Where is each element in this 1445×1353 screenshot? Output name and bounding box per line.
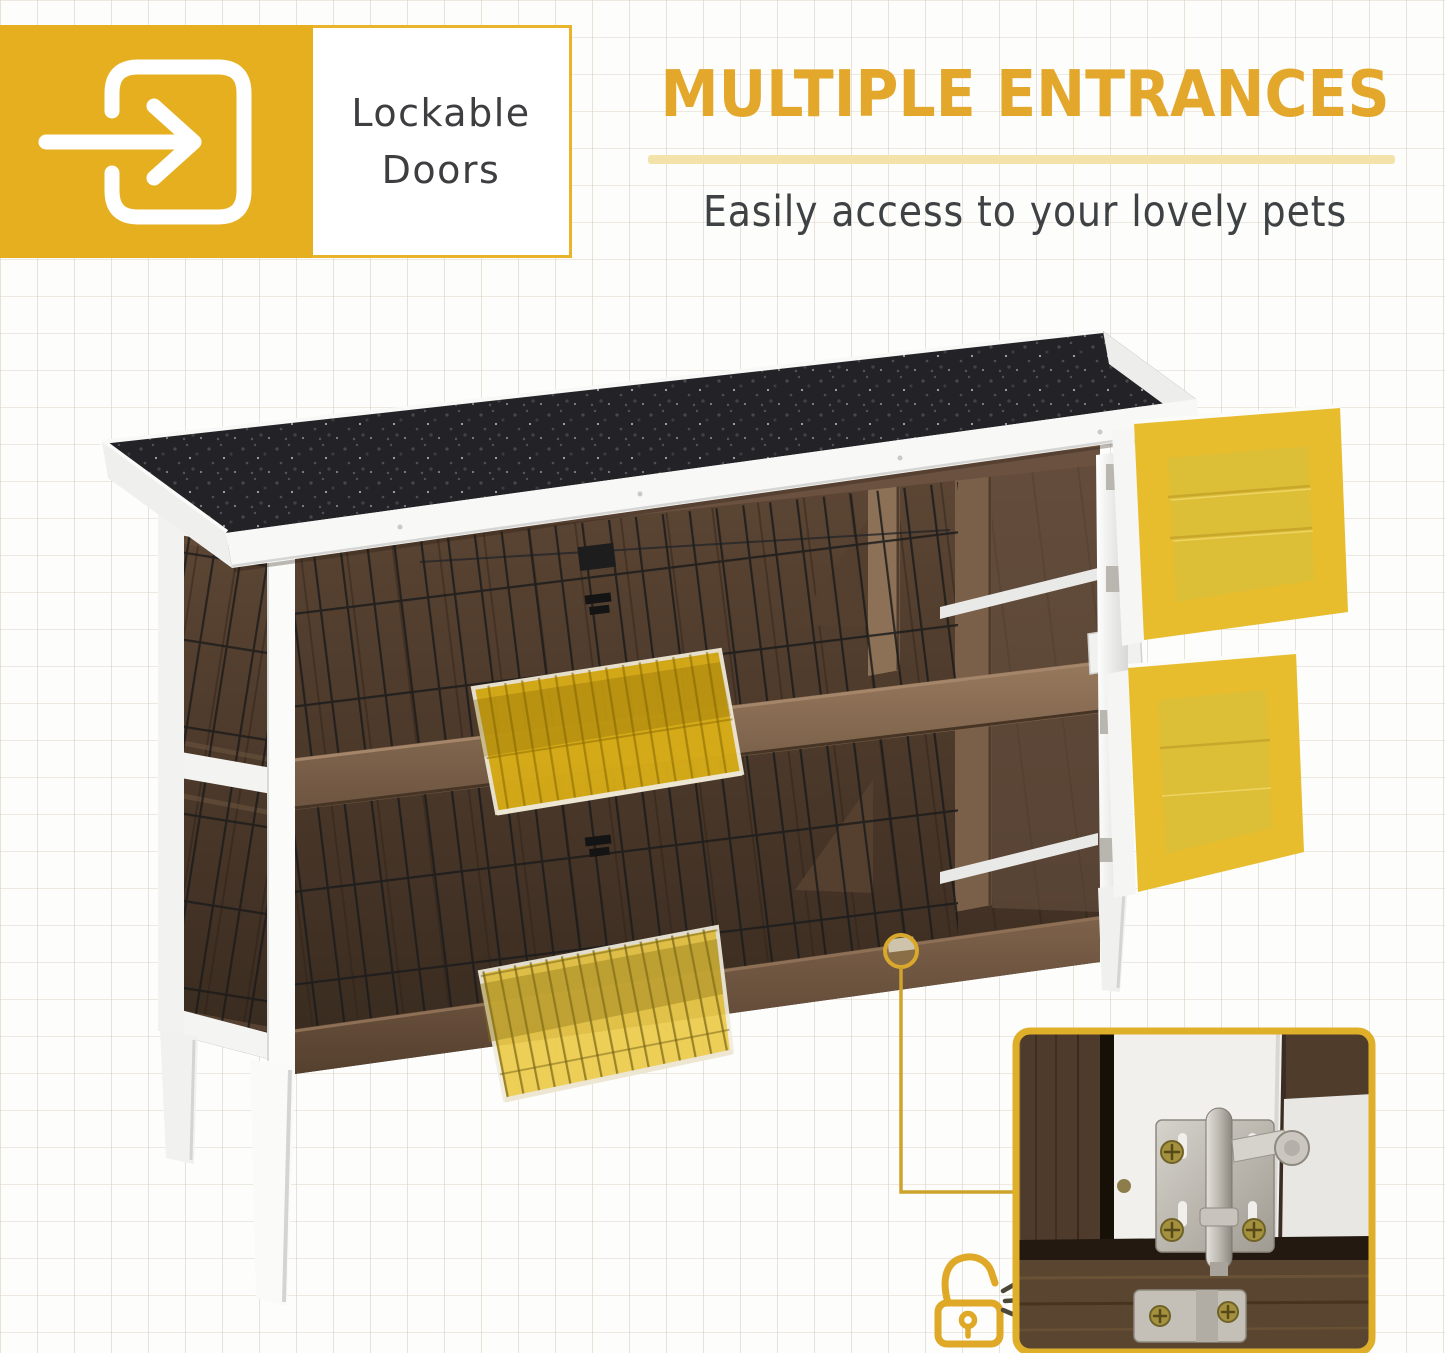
unlocked-padlock-icon [938, 1257, 1000, 1344]
hutch-left-side-panel [158, 505, 295, 1066]
badge-label-line1: Lockable [351, 85, 530, 142]
badge-icon-box [0, 25, 313, 258]
headline-underline [648, 155, 1395, 164]
page-subtitle: Easily access to your lovely pets [581, 187, 1445, 237]
latch-marker-circle [885, 935, 917, 967]
zoom-leader-line [901, 967, 1016, 1192]
badge-label: Lockable Doors [313, 25, 572, 258]
page-title: MULTIPLE ENTRANCES [568, 58, 1445, 132]
upper-right-door-open [1106, 406, 1348, 646]
door-enter-arrow-icon [32, 27, 282, 257]
feature-badge: Lockable Doors [0, 25, 572, 258]
badge-label-line2: Doors [382, 142, 501, 199]
lower-right-door-open [1100, 652, 1304, 898]
latch-closeup-inset [1016, 1031, 1372, 1352]
promo-graphic: Lockable Doors MULTIPLE ENTRANCES Easily… [0, 0, 1445, 1353]
